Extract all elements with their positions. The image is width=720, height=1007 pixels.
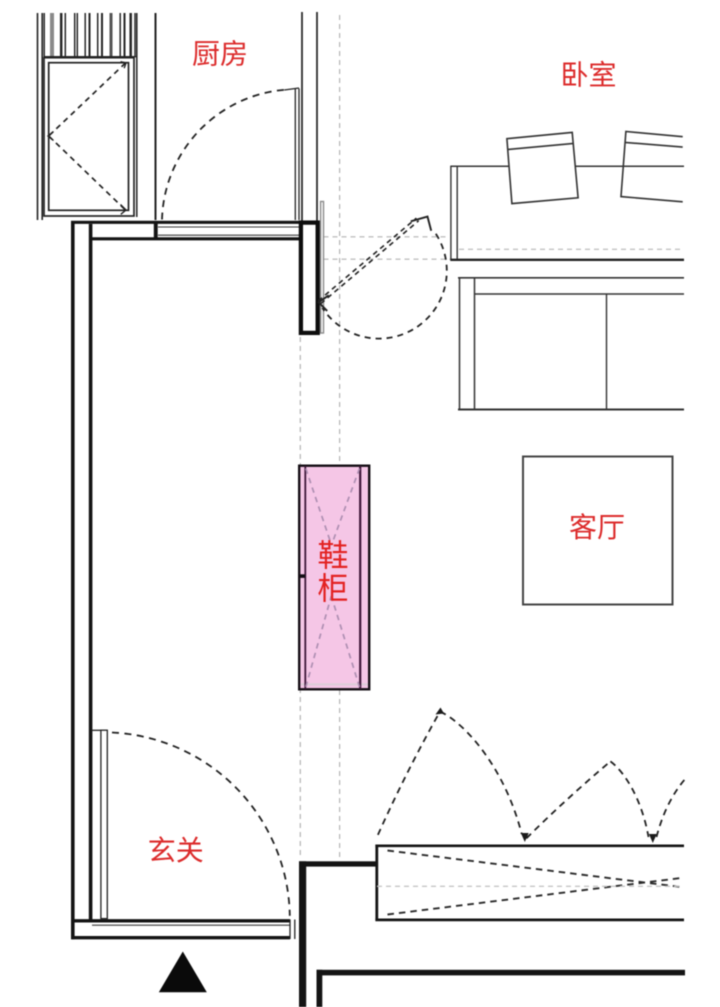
- svg-text:卧室: 卧室: [560, 60, 616, 91]
- svg-text:玄关: 玄关: [148, 835, 204, 866]
- svg-text:柜: 柜: [318, 572, 349, 607]
- svg-text:客厅: 客厅: [569, 512, 625, 543]
- svg-text:鞋: 鞋: [318, 539, 349, 574]
- svg-text:厨房: 厨房: [192, 39, 248, 70]
